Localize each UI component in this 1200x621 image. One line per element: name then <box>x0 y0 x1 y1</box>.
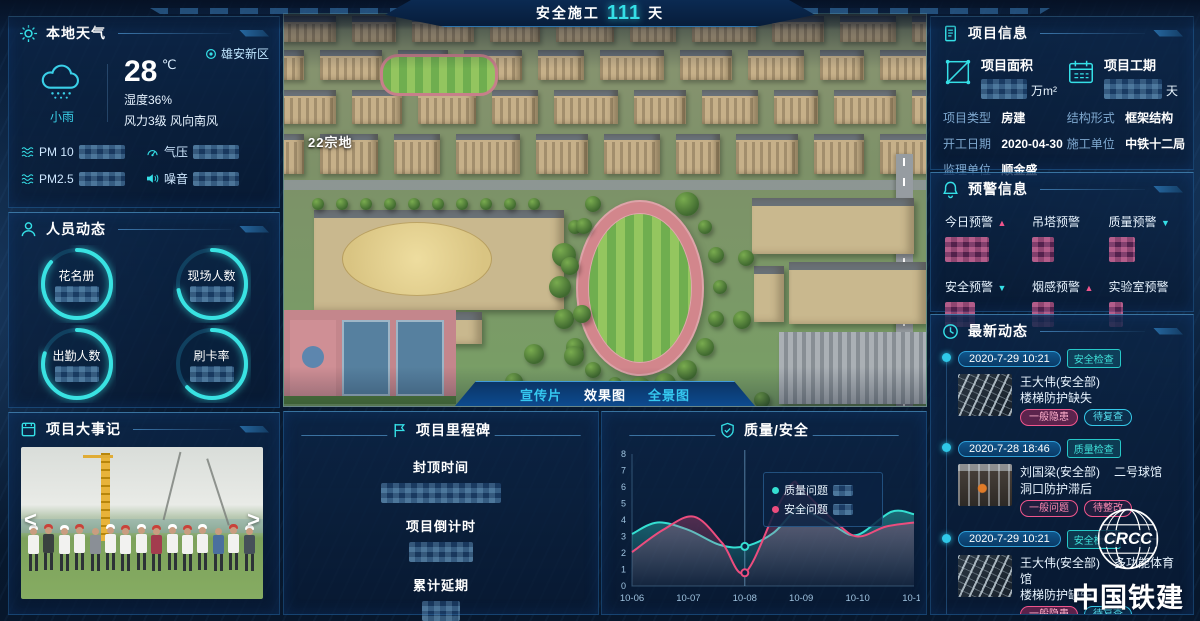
head <box>107 527 114 534</box>
project-fields: 项目类型 房建 结构形式 框架结构 开工日期 2020-04-30 施工单位 中… <box>931 101 1193 178</box>
torso <box>151 535 162 554</box>
warnings-grid: 今日预警 ▲ 吊塔预警 质量预警 ▼ 安全预警 ▼ 烟感预警 ▲ <box>931 203 1193 327</box>
legs <box>91 554 100 571</box>
field-contractor: 施工单位 中铁十二局 <box>1067 135 1185 152</box>
carousel-next-arrow[interactable]: > <box>247 509 260 531</box>
chart-tooltip: 质量问题 安全问题 <box>763 472 883 527</box>
ring-label: 花名册 <box>9 267 144 284</box>
rain-cloud-icon <box>36 61 88 101</box>
photo-person <box>196 524 209 574</box>
divider <box>118 33 231 34</box>
torso <box>28 535 39 554</box>
timeline-dot <box>942 443 951 452</box>
ring-gauge <box>173 325 251 403</box>
tree <box>549 276 571 298</box>
warning-crane: 吊塔预警 <box>1032 213 1102 262</box>
milestone-header: 项目里程碑 <box>284 412 598 444</box>
countdown-label: 项目倒计时 <box>284 516 598 535</box>
severity-tag: 一般问题 <box>1020 500 1078 517</box>
torso <box>90 535 101 554</box>
legs <box>229 553 238 570</box>
aerial-render-art <box>284 14 926 406</box>
calendar-icon <box>1066 57 1096 87</box>
personnel-header: 人员动态 <box>9 213 279 243</box>
svg-text:3: 3 <box>621 532 626 542</box>
timeline-dot <box>942 353 951 362</box>
apartment-block <box>554 90 618 124</box>
tree <box>733 311 751 329</box>
region-selector[interactable]: 雄安新区 <box>205 45 269 62</box>
ring-value <box>144 285 279 303</box>
severity-tag: 一般隐患 <box>1020 409 1078 426</box>
tree <box>336 198 348 210</box>
sports-courts <box>284 310 456 404</box>
torso <box>228 534 239 553</box>
apartment-block <box>536 134 588 174</box>
photo-person <box>89 525 102 575</box>
news-item: 2020-7-29 10:21 安全检查 王大伟(安全部)多功能体育馆 楼梯防护… <box>941 530 1185 615</box>
news-issue: 楼梯防护缺失 <box>1020 587 1185 603</box>
legs <box>245 554 254 571</box>
news-issue: 楼梯防护缺失 <box>1020 390 1132 406</box>
legs <box>152 554 161 571</box>
weather-detail-block: 28 ℃ 湿度36% 风力3级 风向南风 <box>112 57 218 129</box>
duration-stat: 项目工期 天 <box>1066 55 1181 99</box>
legend-dot-safety <box>772 506 779 513</box>
head <box>199 527 206 534</box>
ring-value <box>9 365 144 383</box>
quality-safety-panel: 质量/安全 质量问题 安全问题 01234567810-0610-0710-08… <box>601 411 927 615</box>
photo-person <box>42 524 55 574</box>
photo-person <box>58 525 71 575</box>
wind-text: 风力3级 风向南风 <box>124 112 218 129</box>
torso <box>167 534 178 553</box>
personnel-ring: 现场人数 <box>144 245 279 325</box>
apartment-block <box>394 134 440 174</box>
header-wing <box>620 424 715 436</box>
basketball-court <box>342 320 390 396</box>
speaker-icon <box>146 173 159 184</box>
tree <box>432 198 444 210</box>
header-decoration-left <box>150 8 400 14</box>
header-wing <box>812 424 907 436</box>
legs <box>214 554 223 571</box>
photo-person <box>181 525 194 575</box>
location-icon <box>205 48 217 60</box>
humidity-text: 湿度36% <box>124 91 218 108</box>
svg-text:10-08: 10-08 <box>733 593 757 604</box>
tooltip-safety-row: 安全问题 <box>772 501 874 517</box>
personnel-rings: 花名册现场人数出勤人数刷卡率 <box>9 243 279 405</box>
events-panel: 项目大事记 < > <box>8 412 280 615</box>
safe-days-label: 安全施工 <box>536 3 600 23</box>
header-notch <box>1153 186 1183 193</box>
head <box>153 528 160 535</box>
trend-up-icon: ▲ <box>997 218 1006 228</box>
ring-gauge <box>173 245 251 323</box>
tree <box>708 311 724 327</box>
news-person: 王大伟(安全部) <box>1020 556 1100 570</box>
censored-value <box>1032 237 1054 262</box>
gauge-icon <box>146 146 159 157</box>
warnings-panel: 预警信息 今日预警 ▲ 吊塔预警 质量预警 ▼ 安全预警 ▼ <box>930 172 1194 312</box>
apartment-block <box>748 50 804 80</box>
tree <box>585 196 601 212</box>
tree <box>696 338 714 356</box>
tree <box>576 218 592 234</box>
news-type-tag: 安全检查 <box>1067 530 1121 549</box>
ring-label: 现场人数 <box>144 267 279 284</box>
photo-person <box>166 524 179 574</box>
torso <box>74 534 85 553</box>
quality-safety-chart[interactable]: 质量问题 安全问题 01234567810-0610-0710-0810-091… <box>608 444 926 611</box>
tree <box>713 280 727 294</box>
head <box>215 528 222 535</box>
news-item: 2020-7-29 10:21 安全检查 王大伟(安全部) 楼梯防护缺失 一般隐… <box>941 349 1185 426</box>
divider <box>133 429 231 430</box>
photo-person <box>212 525 225 575</box>
flag-icon <box>391 422 408 439</box>
tree <box>456 198 468 210</box>
divider <box>118 229 231 230</box>
small-sports-field <box>380 54 498 96</box>
delay-label: 累计延期 <box>284 575 598 594</box>
legs <box>137 553 146 570</box>
apartment-block <box>492 90 538 124</box>
censored-value <box>193 145 239 159</box>
area-stat: 项目面积 万m² <box>943 55 1058 99</box>
censored-value <box>79 145 125 159</box>
news-panel: 最新动态 2020-7-29 10:21 安全检查 王大伟(安全部) 楼梯防护缺… <box>930 314 1194 615</box>
censored-value <box>55 286 99 302</box>
weather-condition: 小雨 <box>21 108 103 125</box>
apartment-block <box>912 90 927 124</box>
censored-value <box>945 237 989 262</box>
legs <box>75 553 84 570</box>
track-infield <box>589 214 691 362</box>
safe-days-banner: 安全施工 111 天 <box>385 0 815 27</box>
svg-text:4: 4 <box>621 515 626 525</box>
duration-unit: 天 <box>1166 82 1178 99</box>
field-structure: 结构形式 框架结构 <box>1067 109 1185 126</box>
news-type-tag: 质量检查 <box>1067 439 1121 458</box>
apartment-block <box>283 134 304 174</box>
tree <box>754 392 770 407</box>
legs <box>106 553 115 570</box>
area-icon <box>943 57 973 87</box>
group-photo-people <box>21 447 263 599</box>
photo-person <box>227 524 240 574</box>
torso <box>105 534 116 553</box>
legs <box>44 553 53 570</box>
warnings-title: 预警信息 <box>968 179 1028 199</box>
svg-text:10-10: 10-10 <box>845 593 869 604</box>
header-notch <box>239 226 269 233</box>
news-item: 2020-7-28 18:46 质量检查 刘国梁(安全部)二号球馆 洞口防护滞后… <box>941 439 1185 516</box>
carousel-prev-arrow[interactable]: < <box>24 509 37 531</box>
school-building <box>752 198 914 254</box>
project-stats: 项目面积 万m² 项目工期 天 <box>931 47 1193 101</box>
sensor-pm10: PM 10 <box>21 143 142 160</box>
temperature-value: 28 <box>124 55 157 88</box>
sensor-label: 气压 <box>164 143 188 160</box>
pink-court <box>290 320 336 396</box>
events-title: 项目大事记 <box>46 419 121 439</box>
apartment-block <box>600 50 664 80</box>
basketball-court <box>396 320 444 396</box>
road <box>284 180 926 190</box>
apartment-block <box>676 134 720 174</box>
apartment-block <box>538 50 584 80</box>
head <box>45 527 52 534</box>
warnings-header: 预警信息 <box>931 173 1193 203</box>
legend-quality-label: 质量问题 <box>784 482 828 498</box>
censored-value <box>833 504 853 515</box>
ring-value <box>144 365 279 383</box>
svg-text:6: 6 <box>621 482 626 492</box>
pm-waves-icon <box>21 146 34 157</box>
head <box>61 528 68 535</box>
dashboard: 安全施工 111 天 22宗地 宣传片 效果图 全景图 本地天气 <box>0 0 1200 621</box>
field-project-type: 项目类型 房建 <box>943 109 1063 126</box>
warning-quality: 质量预警 ▼ <box>1109 213 1179 262</box>
panorama-button[interactable]: 全景图 <box>648 385 690 404</box>
person-icon <box>19 220 38 239</box>
apartment-block <box>680 50 732 80</box>
svg-text:10-11: 10-11 <box>902 593 920 604</box>
tree <box>585 362 601 378</box>
weather-panel: 本地天气 雄安新区 小雨 28 <box>8 16 280 208</box>
quality-title: 质量/安全 <box>744 420 809 440</box>
sensor-noise: 噪音 <box>146 170 267 187</box>
censored-value <box>1109 237 1135 262</box>
render-view-button[interactable]: 效果图 <box>584 385 626 404</box>
censored-value <box>981 79 1027 99</box>
weather-condition-block: 小雨 <box>21 61 103 125</box>
news-photo <box>958 374 1012 416</box>
tree <box>698 220 712 234</box>
head <box>138 527 145 534</box>
tree <box>312 198 324 210</box>
alarm-icon <box>941 180 960 199</box>
tree <box>675 192 699 216</box>
apartment-block <box>814 134 864 174</box>
legs <box>29 554 38 571</box>
header-notch <box>1153 328 1183 335</box>
photo-person <box>73 524 86 574</box>
news-photo <box>958 464 1012 506</box>
field-start-date: 开工日期 2020-04-30 <box>943 135 1063 152</box>
milestone-photo: < > <box>21 447 263 599</box>
apartment-block <box>320 50 382 80</box>
ring-value <box>9 285 144 303</box>
school-courtyard <box>342 222 492 296</box>
topping-time-label: 封顶时间 <box>284 457 598 476</box>
divider <box>1040 33 1145 34</box>
legs <box>198 553 207 570</box>
torso <box>59 535 70 554</box>
torso <box>43 534 54 553</box>
censored-value <box>55 366 99 382</box>
news-person: 刘国梁(安全部) <box>1020 465 1100 479</box>
pm-waves-icon <box>21 173 34 184</box>
censored-value <box>193 172 239 186</box>
ring-gauge <box>38 325 116 403</box>
news-issue: 洞口防护滞后 <box>1020 481 1162 497</box>
milestone-title: 项目里程碑 <box>416 420 491 440</box>
header-notch <box>239 30 269 37</box>
legs <box>168 553 177 570</box>
legend-dot-quality <box>772 487 779 494</box>
torso <box>136 534 147 553</box>
svg-text:8: 8 <box>621 449 626 459</box>
temperature-unit: ℃ <box>162 57 177 72</box>
head <box>122 528 129 535</box>
delay-item: 累计延期 <box>284 575 598 621</box>
tree <box>524 344 544 364</box>
apartment-block <box>283 50 304 80</box>
apartment-block <box>604 134 660 174</box>
header-decoration-right <box>800 8 1050 14</box>
topping-time-item: 封顶时间 <box>284 457 598 503</box>
memo-icon <box>19 420 38 439</box>
censored-value <box>190 286 234 302</box>
aerial-render-view[interactable]: 22宗地 宣传片 效果图 全景图 <box>283 13 927 407</box>
sensor-label: PM2.5 <box>39 172 74 186</box>
photo-person <box>135 524 148 574</box>
safe-days-unit: 天 <box>648 3 664 23</box>
photo-person <box>150 525 163 575</box>
censored-value <box>79 172 125 186</box>
header-notch <box>1153 30 1183 37</box>
personnel-ring: 出勤人数 <box>9 325 144 405</box>
tree <box>708 247 724 263</box>
quality-header: 质量/安全 <box>602 412 926 444</box>
clock-icon <box>941 322 960 341</box>
svg-text:5: 5 <box>621 499 626 509</box>
personnel-panel: 人员动态 花名册现场人数出勤人数刷卡率 <box>8 212 280 408</box>
legs <box>121 554 130 571</box>
svg-text:2: 2 <box>621 548 626 558</box>
svg-text:10-09: 10-09 <box>789 593 813 604</box>
region-name: 雄安新区 <box>221 45 269 62</box>
censored-value <box>1104 79 1162 99</box>
plot-22-label: 22宗地 <box>308 132 352 151</box>
tree <box>738 250 754 266</box>
torso <box>182 535 193 554</box>
censored-value <box>833 485 853 496</box>
sensor-label: PM 10 <box>39 145 74 159</box>
legend-safety-label: 安全问题 <box>784 501 828 517</box>
head <box>76 527 83 534</box>
legs <box>183 554 192 571</box>
news-title: 最新动态 <box>968 321 1028 341</box>
news-header: 最新动态 <box>931 315 1193 345</box>
personnel-ring: 刷卡率 <box>144 325 279 405</box>
svg-text:1: 1 <box>621 565 626 575</box>
tree <box>573 305 591 323</box>
divider <box>107 64 108 122</box>
news-time-badge: 2020-7-29 10:21 <box>958 351 1061 367</box>
news-time-badge: 2020-7-29 10:21 <box>958 531 1061 547</box>
tree <box>360 198 372 210</box>
divider <box>1040 331 1145 332</box>
timeline-dot <box>942 534 951 543</box>
sensor-pressure: 气压 <box>146 143 267 160</box>
apartment-block <box>456 134 520 174</box>
news-type-tag: 安全检查 <box>1067 349 1121 368</box>
ring-label: 出勤人数 <box>9 347 144 364</box>
header-wing <box>292 424 387 436</box>
apartment-block <box>834 90 896 124</box>
news-photo <box>958 555 1012 597</box>
trend-down-icon: ▼ <box>997 283 1006 293</box>
legs <box>60 554 69 571</box>
school-building <box>754 266 784 322</box>
tree <box>554 309 574 329</box>
divider <box>1040 189 1145 190</box>
svg-text:10-07: 10-07 <box>676 593 700 604</box>
tree <box>384 198 396 210</box>
milestone-panel: 项目里程碑 封顶时间 项目倒计时 累计延期 <box>283 411 599 615</box>
tree <box>677 360 697 380</box>
torso <box>213 535 224 554</box>
tree <box>480 198 492 210</box>
tree <box>528 198 540 210</box>
shield-icon <box>719 422 736 439</box>
sensor-pm25: PM2.5 <box>21 170 142 187</box>
torso <box>197 534 208 553</box>
promo-video-button[interactable]: 宣传片 <box>520 385 562 404</box>
personnel-title: 人员动态 <box>46 219 106 239</box>
news-person: 王大伟(安全部) <box>1020 375 1100 389</box>
apartment-block <box>736 134 798 174</box>
status-tag: 待复查 <box>1084 606 1132 615</box>
status-tag: 待复查 <box>1084 409 1132 426</box>
apartment-block <box>774 90 818 124</box>
trend-down-icon: ▼ <box>1161 218 1170 228</box>
apartment-block <box>820 50 864 80</box>
header-notch <box>239 426 269 433</box>
sensor-label: 噪音 <box>164 170 188 187</box>
ring-gauge <box>38 245 116 323</box>
head <box>169 527 176 534</box>
tree <box>408 198 420 210</box>
photo-person <box>119 525 132 575</box>
head <box>184 528 191 535</box>
news-list[interactable]: 2020-7-29 10:21 安全检查 王大伟(安全部) 楼梯防护缺失 一般隐… <box>941 349 1185 615</box>
photo-person <box>104 524 117 574</box>
header-wing <box>494 424 589 436</box>
tree <box>564 346 584 366</box>
events-header: 项目大事记 <box>9 413 279 443</box>
duration-label: 项目工期 <box>1104 55 1178 74</box>
school-building <box>789 262 926 324</box>
green-strip <box>284 396 456 404</box>
svg-text:7: 7 <box>621 466 626 476</box>
gymnasium-roof <box>779 332 926 404</box>
head <box>230 527 237 534</box>
svg-text:10-06: 10-06 <box>620 593 644 604</box>
running-track <box>576 200 704 376</box>
area-label: 项目面积 <box>981 55 1057 74</box>
court-circle <box>302 346 324 368</box>
censored-value <box>381 483 501 503</box>
warning-today: 今日预警 ▲ <box>945 213 1026 262</box>
apartment-block <box>702 90 758 124</box>
news-time-badge: 2020-7-28 18:46 <box>958 441 1061 457</box>
trend-up-icon: ▲ <box>1085 283 1094 293</box>
